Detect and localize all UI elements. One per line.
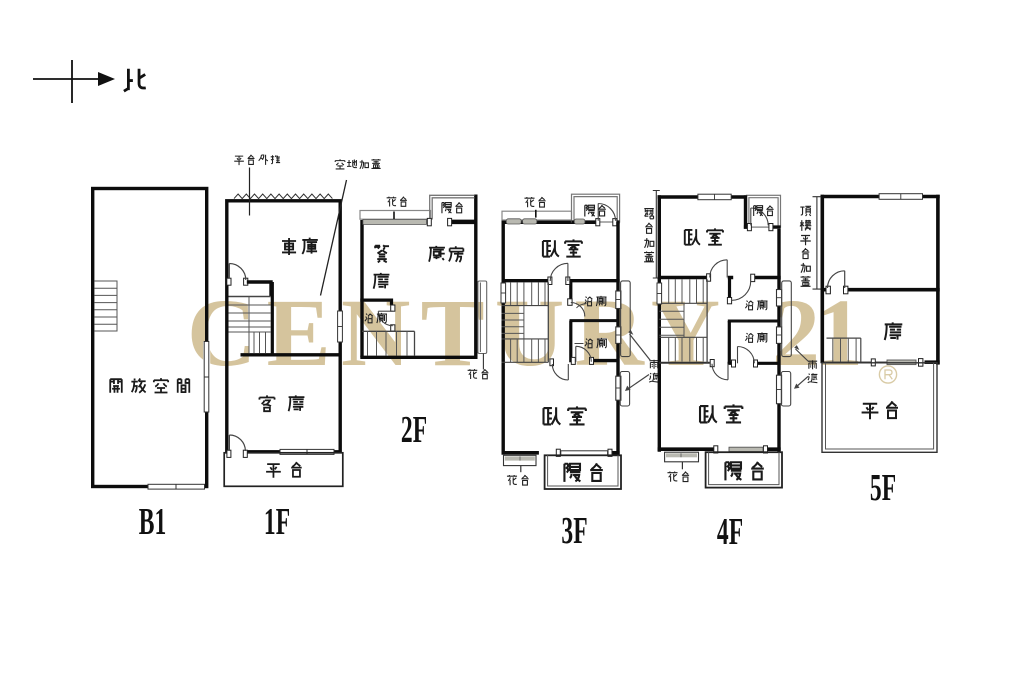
svg-text:1F: 1F (264, 500, 290, 542)
svg-text:B1: B1 (139, 500, 166, 542)
svg-text:5F: 5F (870, 466, 896, 508)
svg-text:21: 21 (772, 279, 859, 386)
svg-text:2F: 2F (401, 408, 427, 450)
svg-text:3F: 3F (561, 509, 587, 551)
svg-text:4F: 4F (717, 510, 743, 552)
